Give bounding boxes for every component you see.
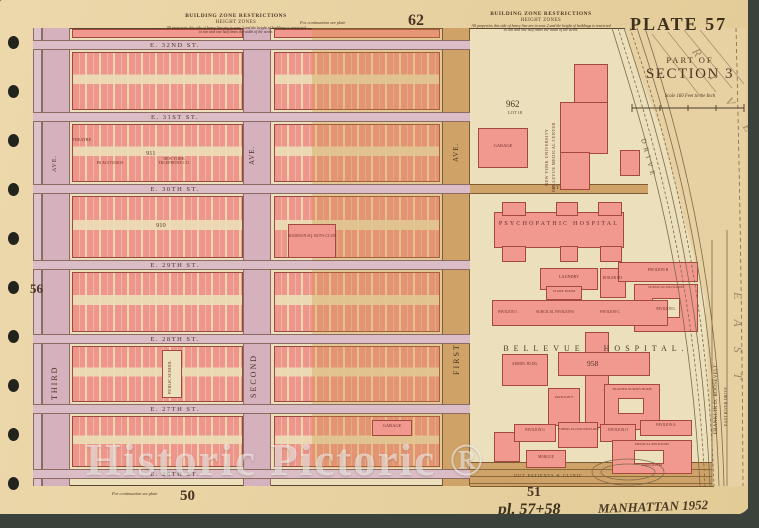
street-e30 — [33, 184, 470, 194]
laundry-label: LAUNDRY — [540, 275, 598, 280]
avenue-label-ave: AVE. — [249, 146, 257, 165]
city-block — [72, 346, 243, 402]
bellevue-main-building — [558, 352, 650, 376]
fdr-drive-label: FRANKLIN D. ROOSEVELT — [714, 364, 719, 434]
photo-edge-right — [748, 0, 759, 528]
avenue-label-third: THIRD — [51, 366, 60, 400]
binding-hole — [8, 36, 19, 49]
adjacent-plate-number-bottom-left: 50 — [180, 488, 195, 504]
street-label-e31: E. 31ST ST. — [100, 114, 250, 121]
street-e27 — [33, 404, 470, 414]
street-label-e29: E. 29TH ST. — [100, 262, 250, 269]
photo-edge-bottom — [0, 514, 759, 528]
block-number-911: 911 — [146, 150, 156, 157]
watermark: Historic Pictoric ® — [86, 436, 485, 485]
nurses-home-label: TRAINED NURSES HOME — [604, 388, 660, 392]
east-word-label: EAST — [731, 292, 744, 399]
psychopathic-hospital-wing — [556, 202, 578, 216]
psychopathic-hospital-label: PSYCHOPATHIC HOSPITAL — [494, 221, 624, 227]
street-label-e28: E. 28TH ST. — [100, 336, 250, 343]
psychopathic-hospital-wing — [600, 246, 622, 262]
city-block-911 — [72, 124, 243, 182]
boys-club-building — [288, 224, 336, 258]
public-school-label: PUBLIC SCHOOL — [168, 360, 173, 394]
film-studios-label: FILM STUDIOS — [96, 161, 124, 165]
garage-label: GARAGE — [478, 144, 528, 149]
pavilion-row-building — [492, 300, 668, 326]
pavilion-g-label: PAVILION G — [514, 429, 556, 433]
plate-section: SECTION 3 — [632, 66, 748, 82]
plate-number: PLATE 57 — [630, 15, 727, 34]
street-label-e32: E. 32ND ST. — [100, 42, 250, 49]
boiler-house-label: BOILER HO. — [598, 277, 628, 281]
street-label-e27: E. 27TH ST. — [100, 406, 250, 413]
garage-label: GARAGE — [372, 424, 412, 429]
avenue-label-first: FIRST — [453, 343, 462, 375]
street-label-e30: E. 30TH ST. — [100, 186, 250, 193]
pavilion-a-label: PAVILION A — [640, 424, 692, 428]
building-footprint — [620, 150, 640, 176]
pavilion-i-label: PAVILION I — [498, 310, 517, 314]
pavilion-g-building — [514, 424, 556, 442]
admin-building — [502, 354, 548, 386]
boys-club-label: MADISON SQ. BOYS CLUB — [288, 234, 336, 238]
street-e31 — [33, 112, 470, 122]
third-avenue — [42, 28, 70, 486]
lot-number-962: 962 — [506, 100, 520, 110]
morgue-label: MORGUE — [526, 455, 566, 459]
telephone-co-label: NEW YORK TELEPHONE CO. — [152, 157, 196, 166]
block-number-910: 910 — [156, 222, 166, 229]
adjacent-plate-number-bottom-right: 51 — [527, 485, 541, 500]
psychopathic-hospital-wing — [502, 202, 526, 216]
adjoining-plate-note: For continuation see plate — [300, 21, 345, 26]
street-e28 — [33, 334, 470, 344]
bellevue-hospital-title: BELLEVUE HOSPITAL. — [490, 345, 702, 354]
pavilion-f-label: PAVILION F — [548, 396, 580, 400]
pavilion-o-label: PAVILION O — [600, 429, 636, 433]
out-patients-clinic-label: OUT PATIENTS & CLINIC — [514, 474, 583, 479]
pavilion-c-label: PAVILION C — [600, 310, 620, 314]
zone-note-body: All properties this side of heavy line a… — [471, 24, 611, 32]
nyu-medical-center-building — [574, 64, 608, 106]
zone-note-subtitle: HEIGHT ZONES — [455, 18, 627, 23]
city-block — [72, 52, 243, 110]
binding-hole — [8, 477, 19, 490]
binding-hole — [8, 281, 19, 294]
adjacent-plate-number-left: 56 — [30, 282, 43, 296]
binding-hole — [8, 379, 19, 392]
building-number-958: 958 — [587, 360, 598, 368]
east-river-drive-label: EAST RIVER DRIVE — [724, 387, 728, 426]
first-avenue — [442, 28, 470, 486]
nyu-medical-center-building — [560, 152, 590, 190]
medical-pavilions-label: MEDICAL PAVILIONS — [612, 443, 692, 447]
adjoining-plate-note: For continuation see plate — [112, 492, 157, 497]
avenue-label-second: SECOND — [250, 354, 259, 398]
zone-note-body: All properties this side of heavy line a… — [166, 26, 306, 34]
second-avenue — [243, 28, 271, 486]
pavilion-b-label: PAVILION B — [618, 268, 698, 272]
admin-building-label: ADMIN. BLDG. — [502, 362, 548, 366]
zone-note-title: BUILDING ZONE RESTRICTIONS — [455, 12, 627, 18]
adjacent-plate-number-top: 62 — [408, 12, 424, 29]
zone-note-subtitle: HEIGHT ZONES — [150, 20, 322, 25]
city-block — [72, 272, 243, 332]
psychopathic-hospital-building — [494, 212, 624, 248]
psychopathic-hospital-wing — [560, 246, 578, 262]
psychopathic-hospital-wing — [502, 246, 526, 262]
street-e29 — [33, 260, 470, 270]
store-room-label: STORE ROOM — [546, 290, 582, 294]
avenue-label-ave: AVE. — [453, 143, 461, 162]
binding-hole — [8, 330, 19, 343]
psychopathic-hospital-wing — [598, 202, 622, 216]
nyu-medical-center-label: BELLEVUE MEDICAL CENTER — [552, 122, 557, 192]
pavilion-l-label: PAVILION L — [636, 308, 696, 312]
nyu-medical-center-label: NEW YORK UNIVERSITY — [545, 129, 550, 186]
map-left-margin-strip — [33, 28, 42, 486]
lot-18-label: LOT 18 — [508, 111, 522, 116]
morgue-building — [526, 450, 566, 468]
tuberculosis-pavilion-building — [558, 422, 598, 448]
nyu-medical-center-building — [560, 102, 608, 154]
atlas-photo: BUILDING ZONE RESTRICTIONS HEIGHT ZONES … — [0, 0, 759, 528]
theatre-label: THEATRE — [72, 138, 91, 143]
surgical-pavilions-label: SURGICAL PAVILIONS — [636, 286, 696, 290]
pavilion-f-building — [548, 388, 580, 426]
binding-hole — [8, 428, 19, 441]
courtyard — [634, 450, 664, 464]
binding-hole — [8, 183, 19, 196]
plate-part-of: PART OF — [640, 56, 740, 65]
binding-hole — [8, 85, 19, 98]
binding-hole — [8, 134, 19, 147]
pavilion-m-label: PAVILION M — [612, 464, 692, 468]
tuberculosis-pavilion-label: TUBERCULOSIS PAVILION — [556, 428, 600, 432]
avenue-label-ave: AVE. — [52, 155, 58, 172]
zone-note-title: BUILDING ZONE RESTRICTIONS — [150, 14, 322, 20]
surgical-pavilions-label: SURGICAL PAVILIONS — [536, 310, 574, 314]
courtyard — [618, 398, 644, 414]
binding-hole — [8, 232, 19, 245]
street-e32 — [33, 40, 470, 50]
